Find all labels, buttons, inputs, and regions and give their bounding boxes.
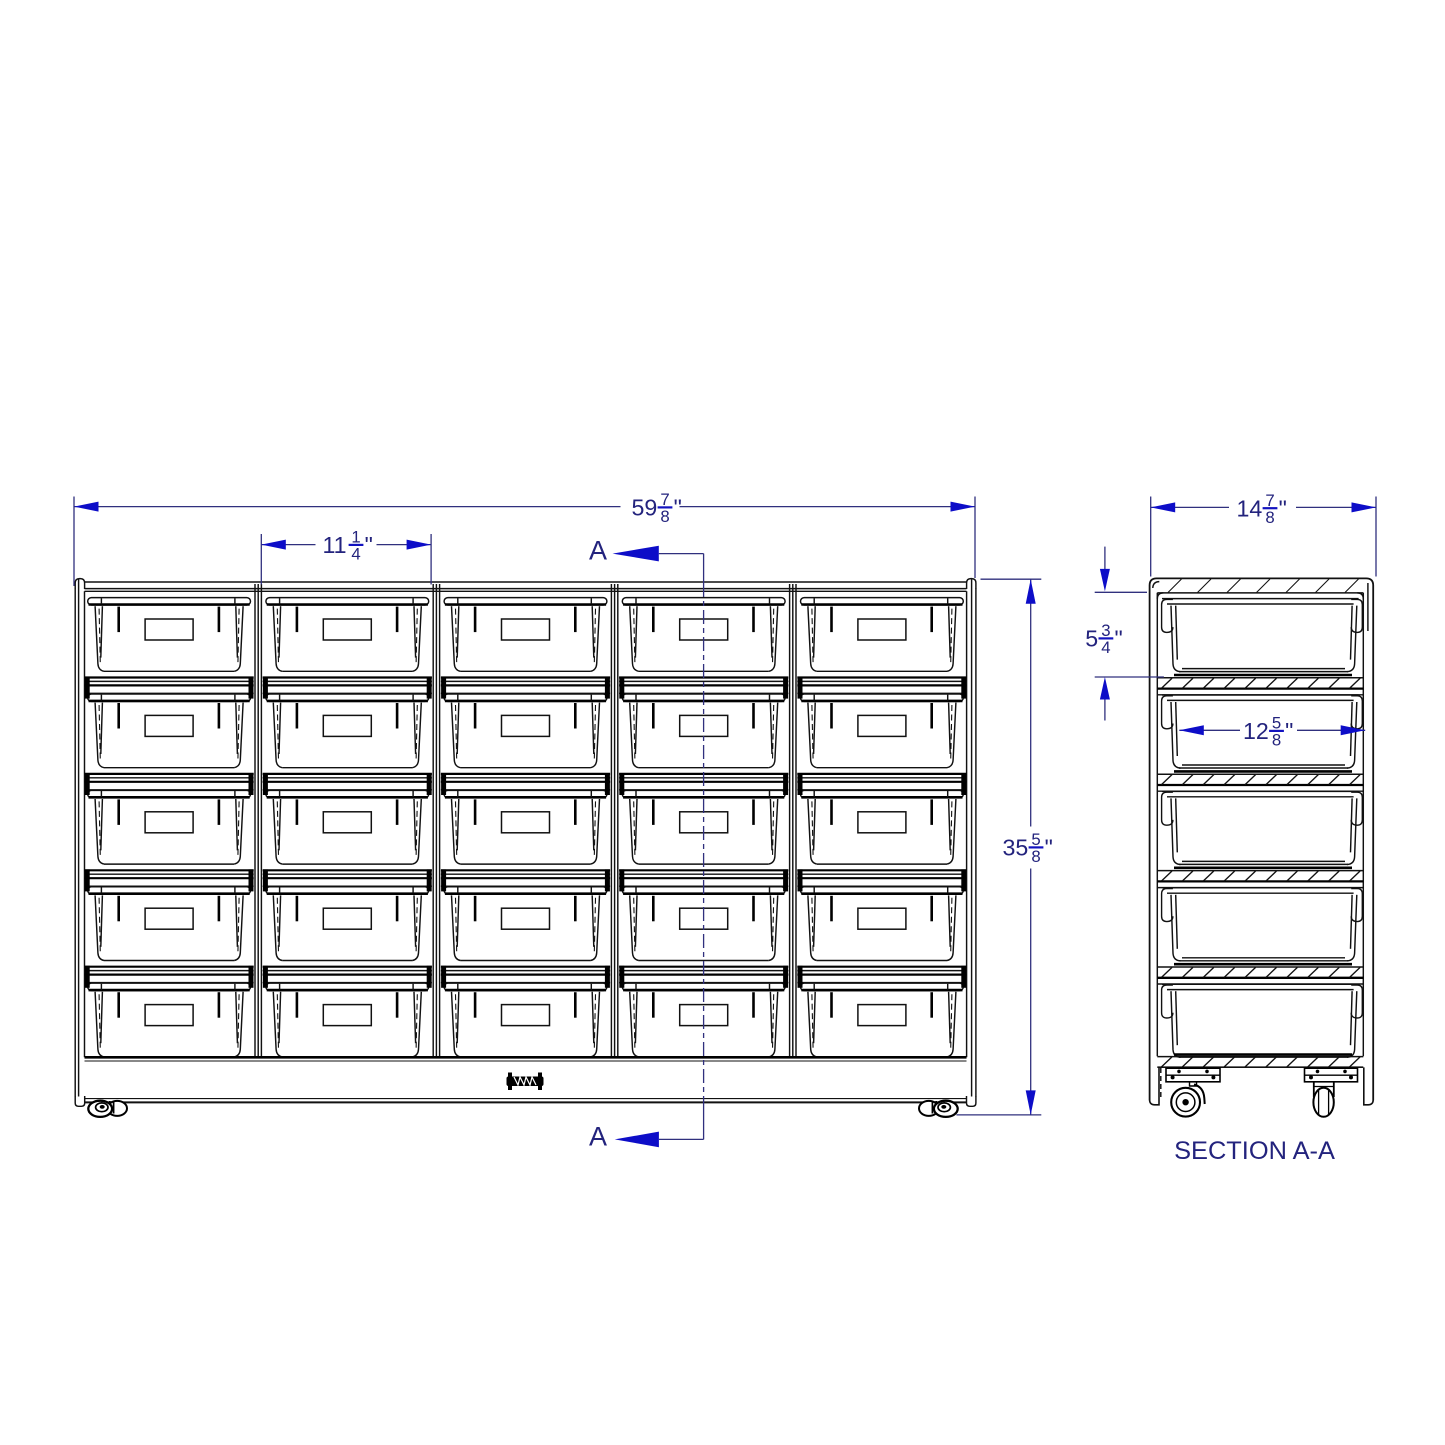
svg-text:8: 8 (1272, 731, 1281, 750)
svg-text:12: 12 (1243, 718, 1269, 744)
svg-text:8: 8 (660, 507, 669, 526)
svg-text:35: 35 (1003, 835, 1029, 861)
svg-text:A: A (589, 536, 607, 566)
svg-text:A: A (589, 1121, 607, 1151)
svg-text:7: 7 (1265, 491, 1274, 510)
svg-text:11: 11 (323, 532, 347, 558)
svg-text:": " (365, 532, 373, 558)
svg-text:": " (674, 495, 682, 521)
svg-text:SECTION A-A: SECTION A-A (1174, 1137, 1335, 1165)
svg-text:": " (1045, 835, 1053, 861)
svg-text:": " (1279, 495, 1287, 521)
svg-text:3: 3 (1101, 621, 1110, 640)
svg-text:4: 4 (1101, 638, 1110, 657)
svg-text:8: 8 (1265, 508, 1274, 527)
svg-text:59: 59 (632, 495, 658, 521)
svg-text:8: 8 (1031, 847, 1040, 866)
svg-text:": " (1285, 718, 1293, 744)
svg-text:1: 1 (351, 528, 360, 547)
svg-text:": " (1115, 626, 1123, 652)
svg-text:5: 5 (1031, 830, 1040, 849)
svg-text:14: 14 (1237, 495, 1263, 521)
svg-text:4: 4 (351, 545, 360, 564)
svg-text:7: 7 (660, 490, 669, 509)
svg-text:5: 5 (1085, 626, 1098, 652)
svg-text:5: 5 (1272, 714, 1281, 733)
